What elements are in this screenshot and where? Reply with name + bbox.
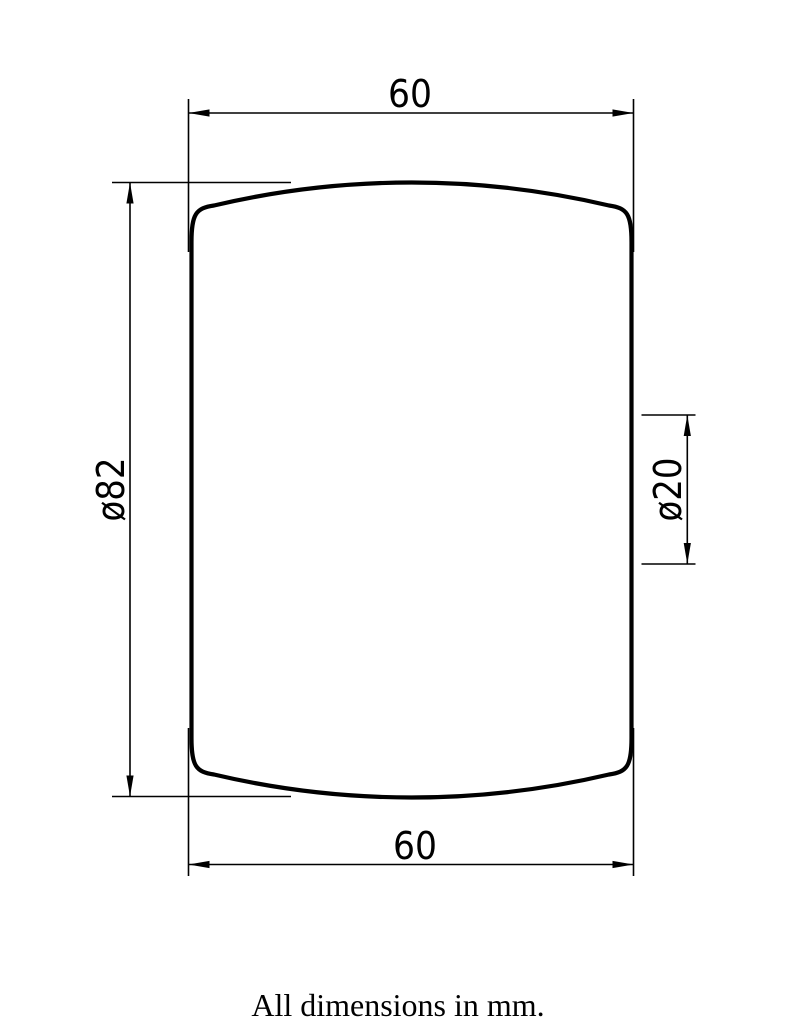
dim-label-top-width: 60 <box>388 72 432 116</box>
dim-label-band-diameter: ø20 <box>646 458 690 522</box>
part-outline-group <box>192 183 632 798</box>
barrel-outline <box>192 183 632 798</box>
arrowhead-bottom-right-icon <box>613 861 634 868</box>
arrowheads-group <box>126 109 691 868</box>
caption-units-note: All dimensions in mm. <box>251 987 544 1023</box>
arrowhead-band-up-icon <box>684 415 691 436</box>
drawing-page: 60 60 ø82 ø20 All dimensions in mm. <box>0 0 807 1024</box>
arrowhead-bottom-left-icon <box>189 861 210 868</box>
arrowhead-band-down-icon <box>684 543 691 564</box>
technical-drawing-canvas: 60 60 ø82 ø20 All dimensions in mm. <box>0 0 807 1024</box>
dimension-lines-group <box>112 99 696 876</box>
arrowhead-height-up-icon <box>126 183 133 204</box>
dim-label-height-diameter: ø82 <box>89 458 133 522</box>
arrowhead-height-down-icon <box>126 776 133 797</box>
arrowhead-top-left-icon <box>189 109 210 116</box>
dim-label-bottom-width: 60 <box>393 824 437 868</box>
dimension-labels-group: 60 60 ø82 ø20 All dimensions in mm. <box>89 72 690 1023</box>
arrowhead-top-right-icon <box>613 109 634 116</box>
